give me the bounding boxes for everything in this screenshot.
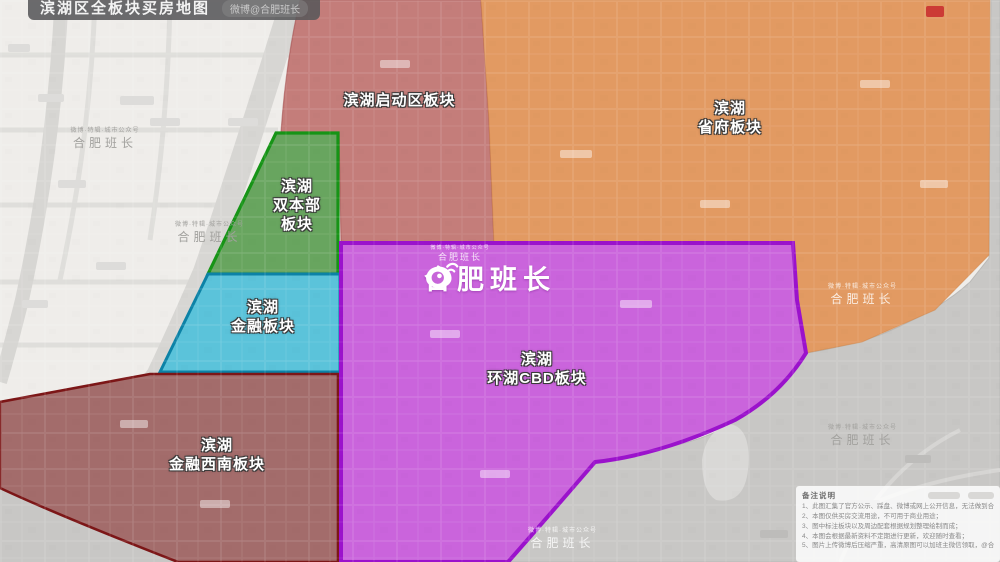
weibo-handle: 微博@合肥班长 — [222, 0, 308, 17]
region-label-shengfu: 滨湖 省府板块 — [660, 100, 800, 138]
region-label-jinrong: 滨湖 金融板块 — [203, 299, 323, 337]
notes-item: 1、此图汇集了官方公示、踩盘、微博或网上公开信息，无法做到合肥地区实时更新及交流… — [802, 502, 994, 512]
notes-box: 备注说明 1、此图汇集了官方公示、踩盘、微博或网上公开信息，无法做到合肥地区实时… — [796, 486, 1000, 562]
notes-item: 4、本图会根据最新资料不定期进行更新，欢迎随时查看； — [802, 532, 994, 542]
region-label-qidongqu: 滨湖启动区板块 — [327, 92, 472, 111]
weibo-icon — [424, 258, 460, 290]
notes-item: 2、本图仅供买房交流用途，不可用于商业用途； — [802, 512, 994, 522]
region-label-shuangbenbu: 滨湖 双本部 板块 — [247, 178, 347, 234]
notes-header-pill — [968, 492, 994, 499]
notes-header: 备注说明 — [802, 490, 994, 501]
notes-heading: 备注说明 — [802, 490, 836, 501]
watermark-block: 微博·特辑·城市公众号 合肥班长 — [55, 128, 155, 151]
watermark-block: 微博·特辑·城市公众号 合肥班长 — [515, 528, 610, 551]
weibo-watermark: 合肥班长 — [424, 258, 556, 297]
notes-item: 5、图片上传微博后压缩严重，高清原图可以加班主微信领取，@合肥班长 — [802, 541, 994, 551]
title-bar: 滨湖区全板块买房地图 微博@合肥班长 — [28, 0, 320, 20]
binhu-map-poster: 滨湖区全板块买房地图 微博@合肥班长 滨湖启动区板块 滨湖 省府板块 滨湖 双本… — [0, 0, 1000, 562]
notes-header-pill — [928, 492, 960, 499]
region-label-jinrong-xinan: 滨湖 金融西南板块 — [137, 437, 297, 475]
watermark-block: 微博·特辑·城市公众号 合肥班长 — [815, 425, 910, 448]
page-title: 滨湖区全板块买房地图 — [40, 0, 210, 18]
region-label-huanhu-cbd: 滨湖 环湖CBD板块 — [457, 351, 617, 389]
metro-station-pill — [926, 6, 944, 17]
watermark-block: 微博·特辑·城市公众号 合肥班长 — [815, 284, 910, 307]
notes-item: 3、图中标注板块以及周边配套根据规划整理绘制而成； — [802, 522, 994, 532]
watermark-block: 微博·特辑·城市公众号 合肥班长 — [162, 222, 257, 245]
